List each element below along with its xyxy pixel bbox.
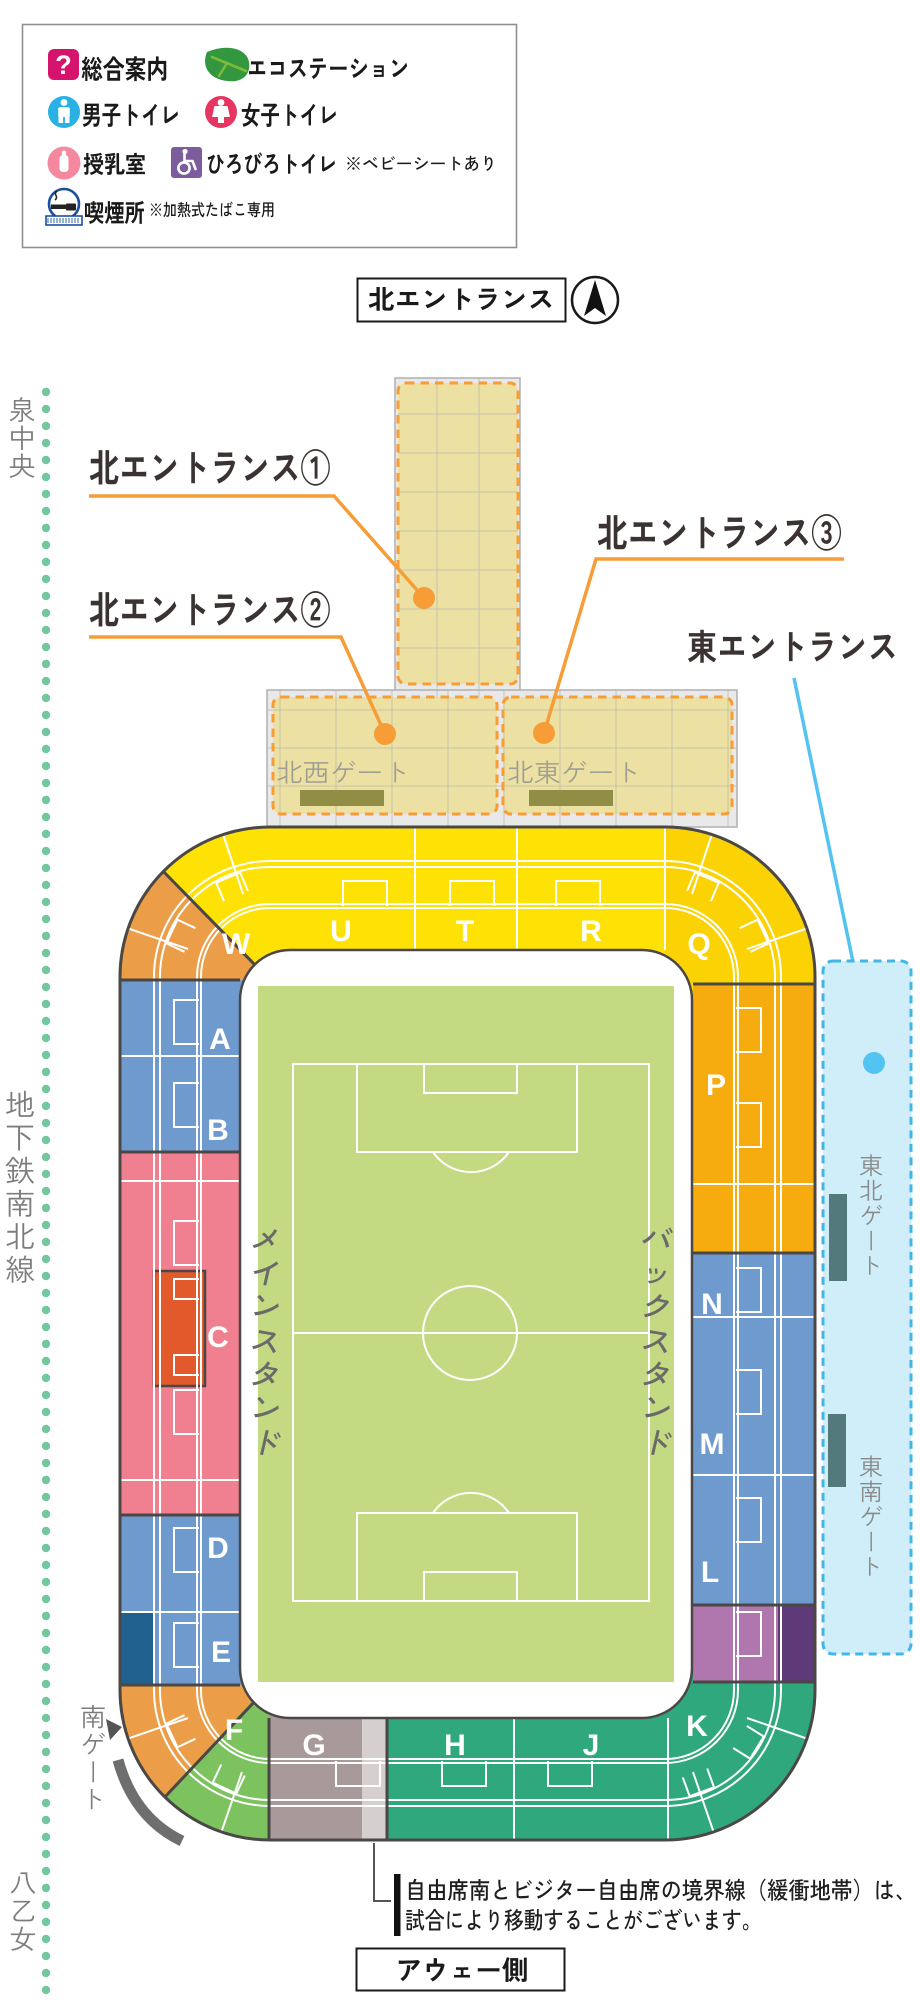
- svg-text:K: K: [686, 1710, 708, 1743]
- svg-text:A: A: [209, 1023, 231, 1056]
- svg-text:?: ?: [55, 50, 72, 80]
- svg-text:E: E: [211, 1636, 231, 1669]
- svg-text:P: P: [706, 1069, 726, 1102]
- svg-text:Q: Q: [687, 928, 710, 961]
- svg-text:H: H: [444, 1729, 466, 1762]
- svg-text:F: F: [225, 1714, 243, 1747]
- svg-text:J: J: [583, 1729, 600, 1762]
- svg-text:M: M: [700, 1428, 725, 1461]
- svg-text:L: L: [701, 1556, 719, 1589]
- svg-text:D: D: [207, 1532, 229, 1565]
- svg-text:C: C: [207, 1321, 229, 1354]
- svg-text:T: T: [456, 915, 474, 948]
- svg-text:N: N: [701, 1288, 723, 1321]
- svg-text:U: U: [330, 915, 352, 948]
- svg-text:R: R: [580, 915, 602, 948]
- svg-text:B: B: [207, 1114, 229, 1147]
- svg-text:W: W: [222, 928, 251, 961]
- svg-text:G: G: [302, 1729, 325, 1762]
